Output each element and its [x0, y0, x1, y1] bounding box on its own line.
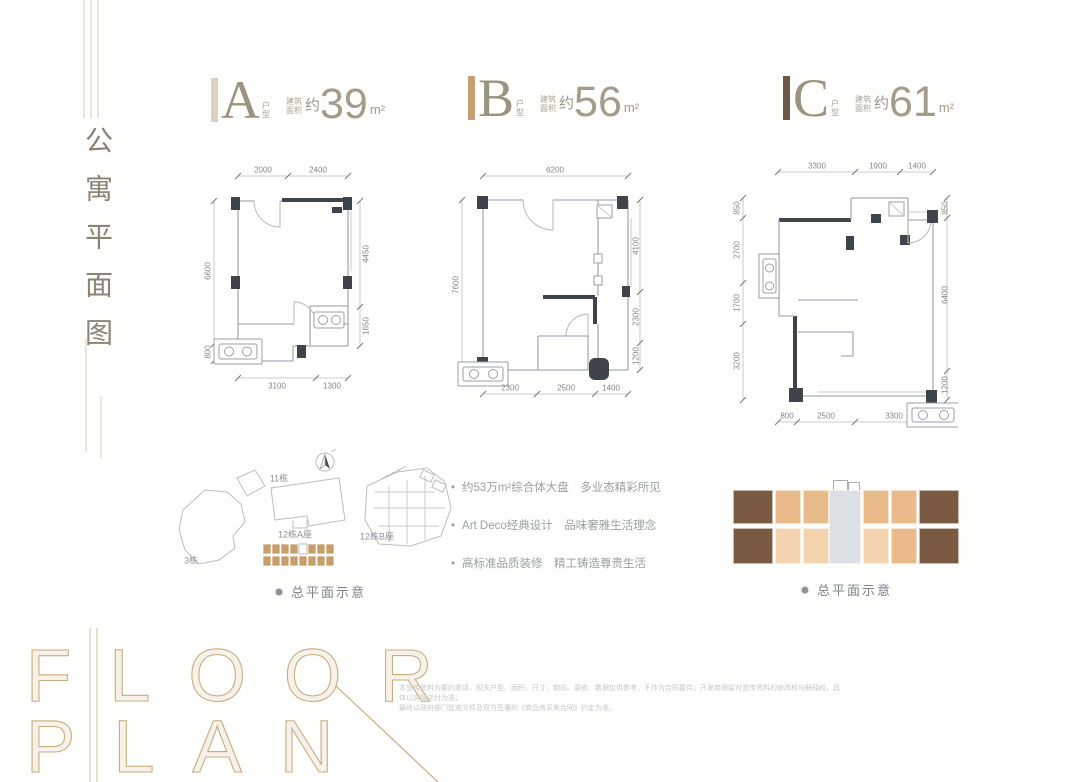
unit-b-type-label: 户 型: [516, 99, 524, 120]
dimension-label: 1400: [602, 384, 620, 393]
disclaimer-line2: 最终以政府部门批准文件及双方签署的《商品房买卖合同》约定为准。: [399, 704, 844, 714]
unit-a-area-prefix: 建筑 面积: [286, 97, 302, 122]
unit-type-char: 型: [516, 108, 524, 117]
floorplate-unit-dark: [733, 490, 773, 524]
caption-dot-icon: [274, 587, 284, 597]
unit-b-area-unit: m²: [624, 100, 639, 120]
feature-bullet: 高标准品质装修 精工铸造尊贵生活: [451, 555, 661, 571]
floorplate-unit-core: [829, 490, 861, 564]
dimension-label: 6200: [546, 166, 564, 175]
area-prefix-line: 建筑: [855, 95, 871, 104]
dimension-label: 1200: [941, 376, 950, 394]
area-prefix-line: 建筑: [286, 97, 302, 106]
unit-c-letter: C: [793, 76, 829, 120]
dimension-label: 6600: [204, 262, 213, 280]
siteplan-caption-text: 总平面示意: [291, 582, 366, 601]
unit-type-char: 型: [831, 108, 839, 117]
floorplate-unit-light: [863, 528, 889, 564]
area-prefix-line: 建筑: [540, 95, 556, 104]
unit-c-area-unit: m²: [939, 100, 954, 120]
dimension-label: 2400: [309, 166, 327, 175]
siteplan-caption: 总平面示意: [274, 582, 366, 601]
unit-a-letter: A: [221, 78, 260, 122]
unit-a-header: A 户 型 建筑 面积 约 39 m²: [211, 78, 385, 122]
siteplan: 11栋12栋A座12栋B座3栋 总平面示意: [175, 448, 465, 604]
unit-type-char: 型: [262, 110, 270, 119]
floorplate-unit-light: [803, 528, 829, 564]
unit-a-color-bar: [211, 78, 218, 122]
watermark-line2: PLAN: [26, 711, 471, 782]
floorplate-unit-dark: [733, 528, 773, 564]
floorplan-a: 2000240066008004450165031001300: [198, 156, 373, 396]
floorplate-unit-tan: [863, 490, 889, 524]
unit-c-area-prefix: 建筑 面积: [855, 95, 871, 120]
unit-c-type-label: 户 型: [831, 99, 839, 120]
area-prefix-line: 面积: [540, 104, 556, 113]
floorplate-unit-light: [775, 528, 801, 564]
dimension-label: 4450: [362, 245, 371, 263]
unit-b-header: B 户 型 建筑 面积 约 56 m²: [468, 76, 639, 120]
unit-b-color-bar: [468, 76, 475, 120]
unit-a-approx: 约: [305, 94, 320, 122]
floorplate-diagram: 总平面示意: [733, 488, 959, 568]
unit-type-char: 户: [516, 99, 524, 108]
floorplan-a-dimensions: 2000240066008004450165031001300: [198, 156, 373, 396]
unit-b-area-prefix: 建筑 面积: [540, 95, 556, 120]
dimension-label: 3100: [268, 382, 286, 391]
dimension-label: 4100: [632, 237, 641, 255]
siteplan-building-label: 12栋B座: [360, 530, 394, 543]
dimension-label: 3200: [733, 352, 742, 370]
dimension-label: 6400: [941, 286, 950, 304]
floorplate-unit-tan: [803, 490, 829, 524]
floorplate-unit-tan: [775, 490, 801, 524]
unit-type-char: 户: [831, 99, 839, 108]
feature-list: 约53万m²综合体大盘 多业态精彩所见 Art Deco经典设计 品味奢雅生活理…: [451, 479, 661, 593]
unit-a-type-label: 户 型: [262, 101, 270, 122]
unit-c-header: C 户 型 建筑 面积 约 61 m²: [783, 76, 954, 120]
disclaimer-line1: 本宣传资料为要约邀请，相关户型、面积、尺寸、朝向、装修、数据仅供参考，不作为合同…: [399, 684, 844, 704]
floorplate-unit-dark: [919, 528, 959, 564]
unit-c-approx: 约: [874, 92, 889, 120]
dimension-label: 3300: [885, 412, 903, 421]
floorplate-unit-tan: [891, 528, 917, 564]
feature-bullet: Art Deco经典设计 品味奢雅生活理念: [451, 517, 661, 533]
dimension-label: 3300: [808, 162, 826, 171]
dimension-label: 850: [941, 201, 950, 214]
floorplate-unit-tan: [891, 490, 917, 524]
siteplan-building-label: 3栋: [184, 554, 198, 567]
dimension-label: 2700: [733, 241, 742, 259]
floorplate-caption-text: 总平面示意: [817, 580, 892, 599]
floorplan-c-dimensions: 3300190014008502700170032008506400120080…: [723, 150, 958, 445]
disclaimer: 本宣传资料为要约邀请，相关户型、面积、尺寸、朝向、装修、数据仅供参考，不作为合同…: [399, 684, 844, 714]
floorplan-b-dimensions: 62007600410023001200230025001400: [448, 158, 643, 406]
unit-b-letter: B: [478, 76, 514, 120]
dimension-label: 2300: [501, 384, 519, 393]
dimension-label: 2000: [254, 166, 272, 175]
dimension-label: 1400: [908, 162, 926, 171]
dimension-label: 2500: [557, 384, 575, 393]
dimension-label: 850: [733, 201, 742, 214]
dimension-label: 7600: [452, 276, 461, 294]
unit-type-char: 户: [262, 101, 270, 110]
dimension-label: 1900: [869, 162, 887, 171]
floorplate-unit-dark: [919, 490, 959, 524]
floorplan-c: 3300190014008502700170032008506400120080…: [723, 150, 958, 445]
dimension-label: 800: [780, 412, 793, 421]
unit-c-area-value: 61: [889, 84, 937, 120]
unit-b-approx: 约: [559, 92, 574, 120]
feature-bullet: 约53万m²综合体大盘 多业态精彩所见: [451, 479, 661, 495]
dimension-label: 2300: [632, 308, 641, 326]
siteplan-building-label: 12栋A座: [278, 528, 312, 541]
unit-b-area-value: 56: [574, 84, 622, 120]
dimension-label: 1300: [323, 382, 341, 391]
dimension-label: 2500: [817, 412, 835, 421]
unit-c-color-bar: [783, 76, 790, 120]
floorplan-b: 62007600410023001200230025001400: [448, 158, 643, 406]
unit-a-area-unit: m²: [370, 102, 385, 122]
siteplan-labels: 11栋12栋A座12栋B座3栋: [175, 448, 465, 604]
area-prefix-line: 面积: [286, 106, 302, 115]
floorplate-caption: 总平面示意: [800, 580, 892, 599]
dimension-label: 1200: [632, 347, 641, 365]
unit-a-area-value: 39: [320, 86, 368, 122]
area-prefix-line: 面积: [855, 104, 871, 113]
dimension-label: 800: [204, 345, 213, 358]
dimension-label: 1700: [733, 294, 742, 312]
page-title: 公寓平面图: [76, 126, 116, 366]
siteplan-building-label: 11栋: [270, 472, 288, 485]
dimension-label: 1650: [362, 317, 371, 335]
floorplan-poster: 公寓平面图 FLOOR PLAN A 户 型 建筑 面积 约 39 m² B 户…: [0, 0, 1080, 782]
caption-dot-icon: [800, 585, 810, 595]
